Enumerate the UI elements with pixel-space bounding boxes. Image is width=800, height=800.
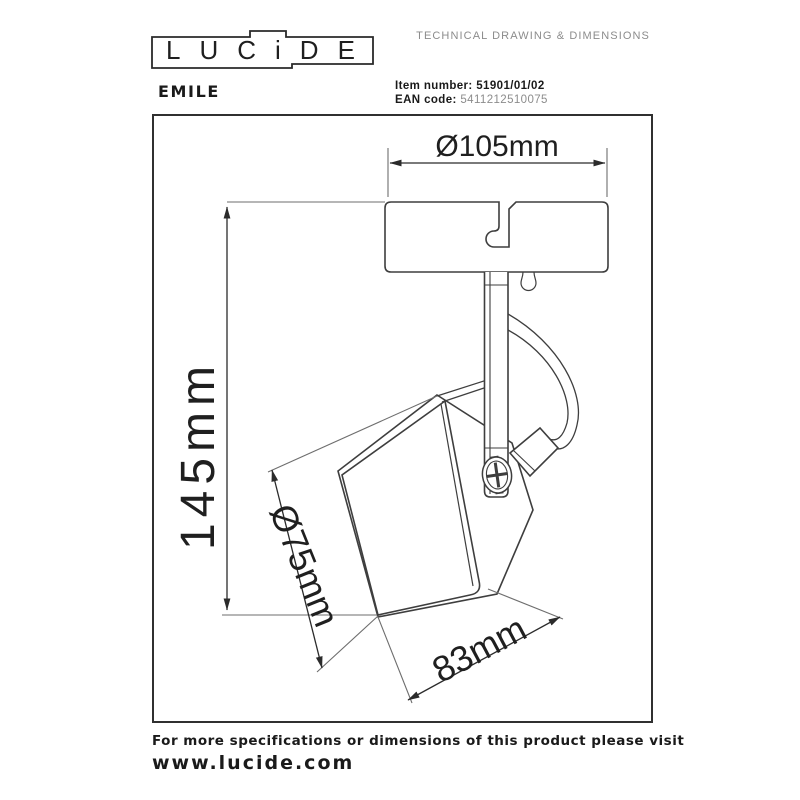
footer-info-line: For more specifications or dimensions of… [152, 733, 684, 749]
website-url: www.lucide.com [152, 752, 684, 774]
footer: For more specifications or dimensions of… [152, 733, 684, 774]
technical-drawing-canvas: LUCiDE [0, 0, 800, 800]
connector-body [510, 428, 558, 476]
cable-outer-edge [508, 314, 578, 449]
cube-face-inner-edge [441, 404, 473, 586]
spotlight-drawing [338, 202, 608, 617]
cable-inner-edge [508, 330, 568, 440]
cable-loop [521, 272, 536, 291]
lucide-logo: LUCiDE [152, 31, 374, 68]
dim-label-head-width: 83mm [425, 607, 533, 690]
ceiling-plate [385, 202, 608, 272]
spec-sheet-page: TECHNICAL DRAWING & DIMENSIONS EMILE Ite… [0, 0, 800, 800]
dim-label-head-diameter: Ø75mm [262, 498, 348, 632]
dim-label-top-diameter: Ø105mm [435, 130, 558, 163]
power-cable [508, 314, 578, 449]
mount-bracket-arm [437, 380, 490, 402]
dim-label-height: 145mm [172, 360, 225, 550]
logo-letters: LUCiDE [166, 35, 374, 65]
connector-plug [510, 428, 558, 476]
